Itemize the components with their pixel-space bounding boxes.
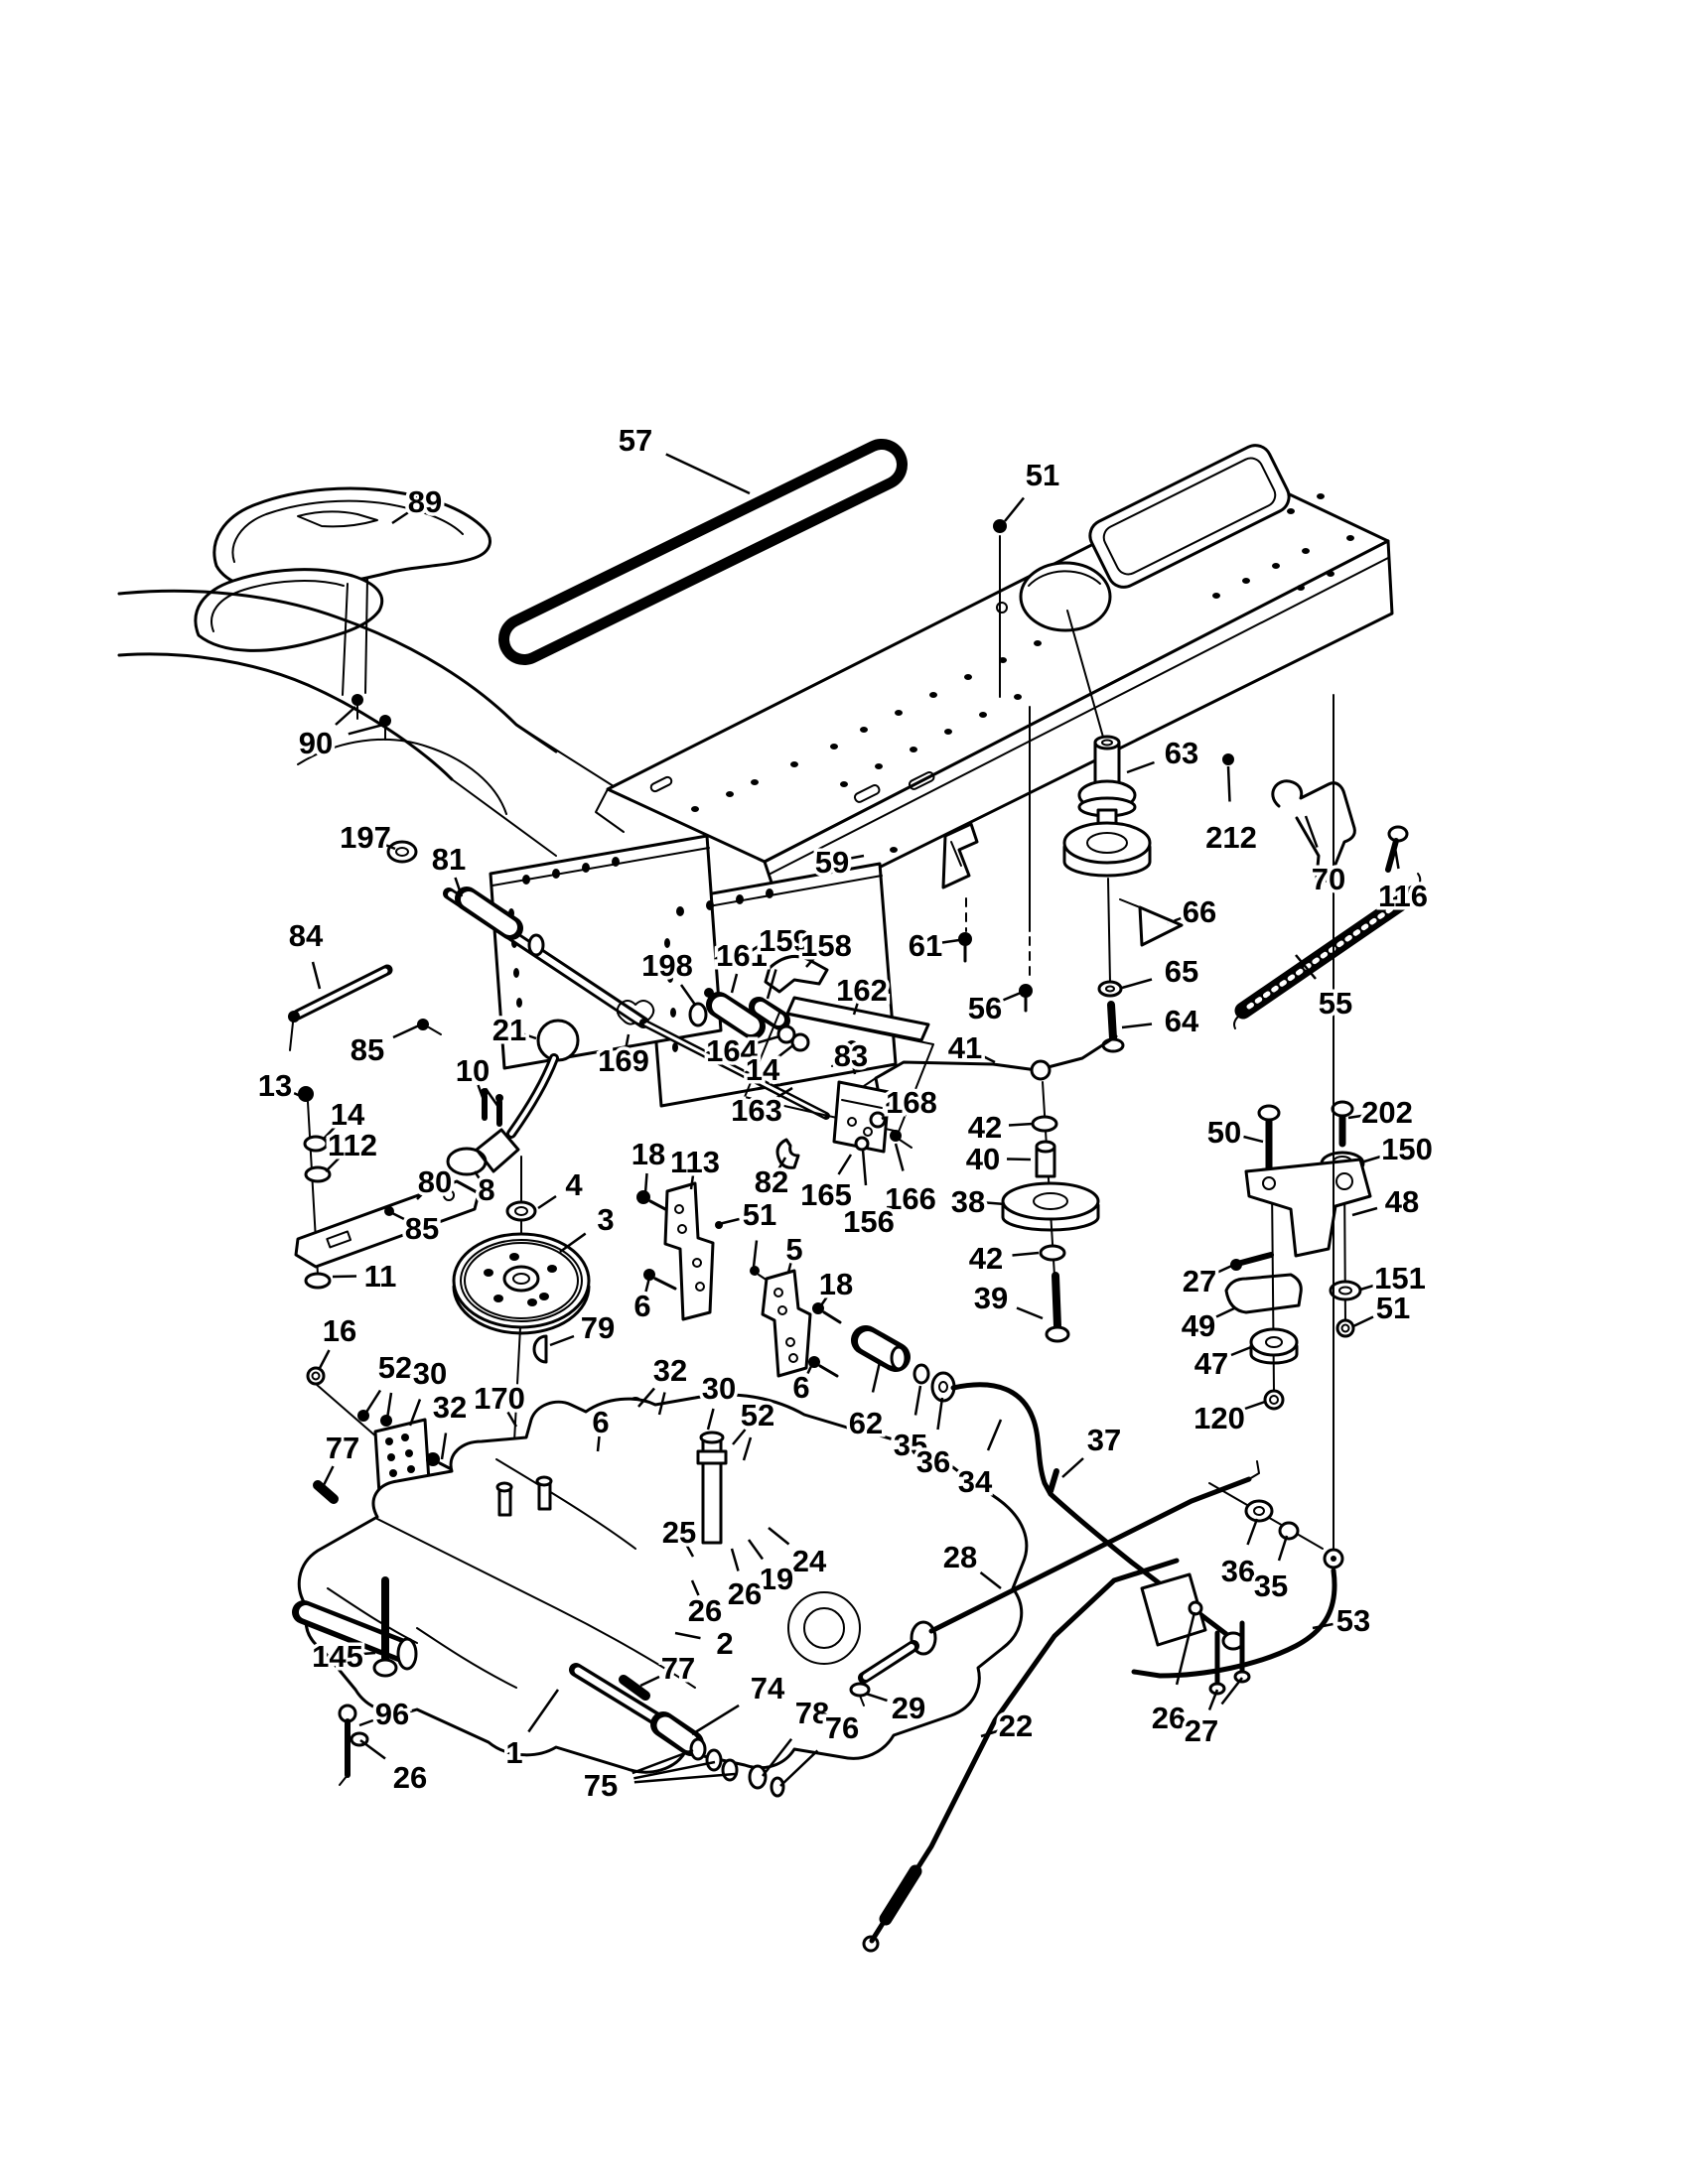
diagram-line [1302, 548, 1310, 554]
diagram-line [664, 938, 670, 948]
diagram-line [300, 971, 385, 1014]
diagram-line [979, 712, 987, 718]
part-label-26a: 26 [688, 1593, 722, 1628]
part-label-51c: 51 [1376, 1291, 1410, 1325]
diagram-line [1249, 1461, 1259, 1479]
leader-line-51c [1353, 1317, 1373, 1327]
diagram-line [840, 781, 848, 787]
diagram-line [340, 1775, 348, 1785]
part-label-6c: 6 [592, 1405, 609, 1439]
drive-belt-57 [524, 465, 882, 639]
nut-16-icon [308, 1368, 324, 1384]
part-label-112: 112 [328, 1128, 377, 1162]
part-label-64: 64 [1165, 1004, 1199, 1038]
part-label-1: 1 [505, 1735, 522, 1770]
washer-76-icon [772, 1778, 783, 1796]
part-label-120: 120 [1193, 1401, 1245, 1435]
part-label-52b: 52 [741, 1398, 774, 1433]
screw-56-icon [1019, 984, 1033, 998]
rods-group [864, 695, 1342, 1951]
leader-line-51a [1005, 498, 1024, 522]
part-label-28: 28 [943, 1540, 977, 1574]
part-label-82: 82 [755, 1164, 788, 1199]
diagram-line [522, 875, 530, 885]
diagram-line [1242, 578, 1250, 584]
leader-line-26c [360, 1740, 385, 1759]
leader-line-212 [1228, 766, 1230, 802]
bolt-32-icon [426, 1452, 440, 1466]
diagram-line [650, 1201, 665, 1209]
part-label-70: 70 [1312, 862, 1345, 896]
screw-61-icon [958, 932, 972, 946]
diagram-line [529, 935, 543, 955]
leader-line-52a [387, 1393, 391, 1419]
part-label-26d: 26 [1152, 1701, 1186, 1735]
diagram-line [892, 1347, 906, 1369]
diagram-line [1235, 1672, 1249, 1682]
part-label-66: 66 [1183, 894, 1216, 929]
diagram-line [288, 1011, 300, 1023]
diagram-line [1287, 508, 1295, 514]
diagram-line [398, 1639, 416, 1669]
part-label-18a: 18 [631, 1137, 665, 1171]
part-label-84: 84 [289, 918, 324, 953]
washer-35-icon [914, 1365, 928, 1383]
part-label-59: 59 [815, 845, 849, 880]
washer-75-icon [707, 1750, 721, 1770]
bolt-27-icon [1241, 1255, 1271, 1263]
part-label-116: 116 [1378, 879, 1428, 913]
part-label-79: 79 [581, 1310, 615, 1345]
diagram-line [119, 654, 452, 779]
part-label-29: 29 [892, 1691, 925, 1725]
part-label-24: 24 [792, 1544, 827, 1578]
diagram-line [1034, 640, 1042, 646]
diagram-line [944, 729, 952, 735]
diagram-line [943, 824, 977, 887]
diagram-line [1317, 493, 1325, 499]
leader-line-48 [1352, 1208, 1377, 1215]
diagram-line [655, 1279, 675, 1289]
diagram-line [964, 674, 972, 680]
part-label-75: 75 [584, 1768, 618, 1803]
diagram-line [612, 857, 620, 867]
screw-212 [1222, 753, 1234, 765]
diagram-line [1272, 1186, 1274, 1392]
washer-156-icon [856, 1138, 868, 1150]
leader-line-38 [987, 1203, 1006, 1205]
diagram-line [484, 1269, 493, 1277]
part-label-56: 56 [968, 991, 1002, 1025]
diagram-line [670, 1008, 676, 1018]
leader-line-64 [1122, 1024, 1152, 1028]
part-label-4: 4 [565, 1167, 583, 1202]
leader-line-35a [915, 1386, 920, 1416]
diagram-line [868, 1341, 894, 1356]
diagram-line [676, 906, 684, 916]
diagram-line [1331, 1556, 1336, 1562]
diagram-line [539, 1293, 549, 1300]
diagram-line [726, 791, 734, 797]
part-label-36b: 36 [1221, 1554, 1255, 1588]
leader-line-79 [550, 1336, 574, 1345]
diagram-line [830, 744, 838, 750]
washer-197-icon [388, 842, 416, 862]
diagram-line [405, 1449, 413, 1457]
part-label-26b: 26 [728, 1576, 762, 1611]
part-label-168: 168 [886, 1085, 937, 1120]
diagram-line [524, 465, 882, 639]
diagram-line [509, 1253, 519, 1261]
diagram-line [504, 1267, 538, 1291]
diagram-line [790, 761, 798, 767]
diagram-line [401, 1433, 409, 1441]
leader-line-34 [988, 1420, 1001, 1450]
diagram-line [1014, 694, 1022, 700]
leader-line-77a [324, 1466, 334, 1485]
leader-line-57 [666, 454, 750, 493]
part-label-150: 150 [1381, 1132, 1433, 1166]
washer-35-icon [1280, 1523, 1298, 1539]
part-label-65: 65 [1165, 954, 1198, 989]
leader-line-37 [1062, 1458, 1083, 1477]
washer-36-icon [1246, 1501, 1272, 1521]
diagram-line [1327, 571, 1334, 577]
diagram-line [895, 710, 903, 716]
diagram-line [1032, 1061, 1050, 1079]
leader-line-50 [1244, 1137, 1264, 1142]
bolt-64-icon [1111, 1005, 1113, 1038]
pin-77-icon [318, 1485, 334, 1499]
diagram-line [886, 1871, 915, 1919]
part-label-57: 57 [619, 423, 652, 458]
diagram-line [792, 1034, 808, 1050]
flag-66 [1120, 899, 1182, 945]
part-label-18b: 18 [819, 1267, 853, 1301]
part-label-6a: 6 [633, 1289, 650, 1323]
part-label-10: 10 [456, 1053, 490, 1088]
part-label-198: 198 [641, 948, 693, 983]
diagram-line [389, 1469, 397, 1477]
leader-line-4 [538, 1196, 556, 1208]
parts-diagram-canvas: 5789905163212701166665645559615641424038… [0, 0, 1684, 2184]
part-label-77a: 77 [326, 1431, 359, 1465]
leader-line-52a [365, 1391, 380, 1415]
leader-line-42a [1009, 1124, 1033, 1126]
diagram-line [1037, 1142, 1054, 1152]
leader-line-56 [1003, 993, 1021, 1001]
part-label-197: 197 [340, 820, 391, 855]
part-label-36a: 36 [916, 1444, 950, 1479]
part-label-62: 62 [849, 1406, 883, 1440]
leader-line-40 [1007, 1160, 1031, 1160]
part-label-8: 8 [478, 1172, 494, 1207]
part-label-212: 212 [1205, 820, 1257, 855]
part-label-170: 170 [474, 1381, 525, 1416]
seat-bolt-icon [351, 694, 363, 706]
leader-line-11 [333, 1277, 356, 1278]
part-label-41: 41 [948, 1030, 982, 1065]
washer-65-icon [1099, 982, 1121, 996]
nut-51-icon [1337, 1320, 1353, 1336]
part-label-47: 47 [1194, 1346, 1228, 1381]
exploded-parts-diagram: 5789905163212701166665645559615641424038… [0, 0, 1684, 2184]
leader-line-61 [942, 940, 959, 943]
diagram-line [582, 863, 590, 873]
part-label-52a: 52 [378, 1350, 412, 1385]
pulley-47-icon [1251, 1329, 1297, 1355]
part-label-30b: 30 [702, 1371, 736, 1406]
part-label-61: 61 [909, 928, 942, 963]
part-label-53: 53 [1336, 1603, 1370, 1638]
washer-75-icon [723, 1760, 737, 1780]
part-label-202: 202 [1361, 1095, 1413, 1130]
key-79-icon [534, 1336, 546, 1362]
part-label-81: 81 [432, 842, 466, 877]
part-label-162: 162 [836, 973, 888, 1008]
part-label-27a: 27 [1183, 1264, 1216, 1298]
washer-198-icon [690, 1004, 706, 1025]
part-label-3: 3 [597, 1202, 614, 1237]
bolt-39-icon [1055, 1276, 1057, 1326]
diagram-line [537, 1477, 551, 1485]
diagram-line [429, 1027, 441, 1034]
part-label-156: 156 [843, 1204, 895, 1239]
leader-line-96 [359, 1719, 376, 1725]
diagram-line [495, 1094, 503, 1102]
diagram-line [1120, 899, 1140, 907]
leader-line-85a [393, 1025, 419, 1037]
part-label-19: 19 [760, 1562, 793, 1596]
part-label-39: 39 [974, 1281, 1008, 1315]
brake-band-49-icon [1226, 1275, 1301, 1312]
washer-36-icon [932, 1373, 954, 1401]
part-label-35b: 35 [1254, 1569, 1288, 1603]
diagram-line [875, 763, 883, 769]
diagram-line [1041, 1246, 1064, 1260]
diagram-line [704, 988, 714, 998]
washer-151-icon [1331, 1282, 1360, 1299]
diagram-line [890, 847, 898, 853]
diagram-line [1297, 585, 1305, 591]
diagram-line [298, 1086, 314, 1102]
leader-line-51b [719, 1219, 740, 1224]
diagram-line [910, 747, 917, 752]
part-label-63: 63 [1165, 736, 1198, 770]
washer-11-icon [306, 1274, 330, 1288]
diagram-line [407, 1465, 415, 1473]
diagram-line [820, 1366, 837, 1376]
washer-4-icon [507, 1202, 535, 1220]
leader-line-63 [1127, 762, 1155, 772]
brake-group [1226, 1102, 1370, 1409]
part-label-27b: 27 [1185, 1713, 1218, 1748]
part-label-51a: 51 [1026, 458, 1059, 492]
part-label-85b: 85 [405, 1211, 439, 1246]
part-label-32a: 32 [433, 1390, 467, 1425]
diagram-line [547, 1265, 557, 1273]
diagram-line [1333, 1102, 1352, 1116]
part-label-42b: 42 [969, 1241, 1003, 1276]
seat-fender-group [119, 488, 635, 856]
part-label-145: 145 [312, 1639, 363, 1674]
leader-line-120 [1242, 1402, 1265, 1410]
part-label-30a: 30 [413, 1356, 447, 1391]
part-label-48: 48 [1385, 1184, 1419, 1219]
part-label-21: 21 [492, 1013, 526, 1047]
bracket-113-icon [665, 1183, 713, 1319]
washer-42-icon [1033, 1117, 1056, 1131]
diagram-line [1051, 1471, 1056, 1491]
diagram-line [736, 894, 744, 904]
diagram-line [1108, 879, 1110, 983]
part-label-26c: 26 [393, 1760, 427, 1795]
diagram-line [1064, 823, 1150, 863]
part-label-14a: 14 [331, 1097, 365, 1132]
part-label-163: 163 [731, 1093, 782, 1128]
leader-line-65 [1122, 980, 1152, 989]
leader-line-90 [349, 725, 383, 734]
diagram-line [766, 888, 773, 898]
part-label-2: 2 [716, 1626, 733, 1661]
diagram-line [701, 1433, 723, 1442]
diagram-line [1259, 1106, 1279, 1120]
diagram-line [698, 1451, 726, 1463]
part-label-37: 37 [1087, 1423, 1121, 1457]
diagram-line [1212, 593, 1220, 599]
leader-line-41 [980, 1055, 995, 1063]
part-label-5: 5 [785, 1232, 802, 1267]
washer-78-icon [750, 1766, 766, 1788]
part-label-13: 13 [258, 1068, 292, 1103]
part-label-32b: 32 [653, 1353, 687, 1388]
part-label-42a: 42 [968, 1110, 1002, 1145]
part-label-158: 158 [800, 928, 852, 963]
leader-line-51b [754, 1241, 757, 1268]
diagram-line [374, 1660, 396, 1676]
diagram-line [513, 968, 519, 978]
screw-85-icon [417, 1019, 429, 1030]
part-label-113: 113 [670, 1145, 720, 1179]
part-label-96: 96 [375, 1697, 409, 1731]
part-label-76: 76 [825, 1710, 859, 1745]
diagram-line [860, 727, 868, 733]
part-label-74: 74 [751, 1671, 785, 1706]
leader-line-42b [1013, 1253, 1040, 1256]
diagram-line [1346, 535, 1354, 541]
part-label-34: 34 [958, 1464, 993, 1499]
idler-pulley-38-icon [1003, 1183, 1098, 1219]
part-label-169: 169 [598, 1043, 649, 1078]
bracket-5-icon [763, 1271, 810, 1376]
screw-52-icon [380, 1415, 392, 1427]
loop-8-icon [448, 1149, 486, 1174]
diagram-line [706, 900, 714, 910]
part-label-83: 83 [834, 1038, 868, 1073]
diagram-line [527, 1298, 537, 1306]
part-label-14b: 14 [746, 1052, 780, 1087]
diagram-line [1272, 563, 1280, 569]
leader-line-16 [319, 1350, 330, 1370]
frame-group [596, 440, 1392, 915]
leader-line-35b [1279, 1536, 1287, 1561]
leader-line-84 [313, 962, 320, 989]
diagram-line [993, 519, 1007, 533]
leader-line-36b [1248, 1519, 1258, 1545]
part-label-90: 90 [299, 726, 333, 760]
part-label-89: 89 [408, 484, 442, 519]
diagram-line [552, 869, 560, 879]
clip-59 [943, 824, 977, 887]
leader-line-166 [896, 1144, 904, 1171]
diagram-line [824, 1312, 840, 1322]
diagram-line [493, 1295, 503, 1302]
part-label-11: 11 [364, 1259, 397, 1294]
diagram-line [516, 998, 522, 1008]
part-label-50: 50 [1207, 1115, 1241, 1150]
diagram-line [1140, 907, 1182, 945]
part-label-22: 22 [999, 1708, 1033, 1743]
washer-26-icon [1190, 1602, 1201, 1614]
part-label-55: 55 [1319, 986, 1352, 1021]
diagram-line [497, 1483, 511, 1491]
leader-line-39 [1017, 1308, 1043, 1319]
part-label-6b: 6 [792, 1370, 809, 1405]
diagram-line [900, 1140, 912, 1148]
part-label-77b: 77 [661, 1651, 695, 1686]
leader-line-47 [1231, 1347, 1251, 1355]
part-label-85a: 85 [351, 1032, 384, 1067]
leader-line-18a [645, 1173, 647, 1193]
leader-line-62 [873, 1362, 880, 1393]
nut-120-icon [1265, 1391, 1283, 1409]
diagram-line [1095, 737, 1119, 749]
diagram-line [929, 692, 937, 698]
washer-75-icon [691, 1739, 705, 1759]
leader-line-90 [336, 707, 355, 725]
part-label-16: 16 [323, 1313, 356, 1348]
part-label-25: 25 [662, 1515, 696, 1550]
leader-line-165 [839, 1155, 852, 1174]
part-label-38: 38 [951, 1184, 985, 1219]
leader-line-32a [442, 1433, 446, 1460]
screw-18-icon [636, 1190, 650, 1204]
diagram-line [1021, 563, 1110, 630]
diagram-line [691, 806, 699, 812]
leader-line-49 [1216, 1308, 1234, 1317]
diagram-line [1047, 1327, 1068, 1341]
part-label-80: 80 [418, 1164, 452, 1199]
diagram-line [1222, 753, 1234, 765]
diagram-line [387, 1453, 395, 1461]
diagram-line [452, 779, 556, 856]
part-label-51b: 51 [743, 1197, 776, 1232]
shift-knob-21-icon [538, 1021, 578, 1060]
diagram-line [385, 1437, 393, 1445]
leader-line-156 [863, 1150, 866, 1185]
diagram-line [290, 1023, 293, 1050]
leader-line-36a [938, 1398, 943, 1430]
washer-168-icon [871, 1113, 885, 1127]
part-label-40: 40 [966, 1142, 1000, 1176]
part-label-49: 49 [1182, 1308, 1215, 1343]
brake-arm-48-icon [1246, 1160, 1370, 1256]
diagram-line [751, 779, 759, 785]
